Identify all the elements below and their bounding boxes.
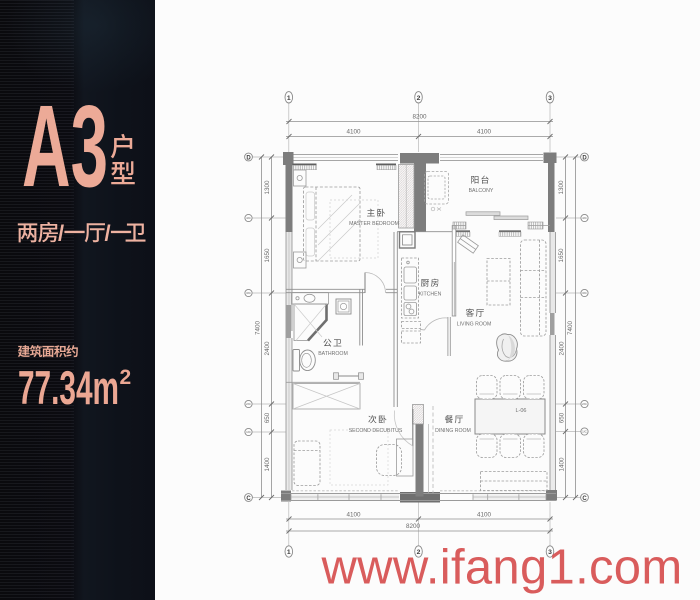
svg-text:BATHROOM: BATHROOM [318,351,348,357]
svg-text:/: / [58,221,64,246]
svg-text:8200: 8200 [406,523,421,530]
svg-text:2400: 2400 [559,341,566,356]
svg-text:4100: 4100 [477,512,492,519]
svg-text:DINING ROOM: DINING ROOM [435,428,471,434]
svg-text:1: 1 [287,95,291,102]
svg-text:KITCHEN: KITCHEN [419,292,442,298]
svg-text:2: 2 [417,95,421,102]
svg-text:D: D [582,155,587,161]
svg-text:1650: 1650 [264,248,271,263]
svg-text:BALCONY: BALCONY [469,188,494,194]
svg-text:2400: 2400 [264,341,271,356]
svg-text:C: C [246,496,251,502]
svg-text:1: 1 [287,549,291,556]
svg-text:7400: 7400 [255,321,262,336]
svg-text:3/C: 3/C [582,291,588,295]
svg-text:4/C: 4/C [246,216,252,220]
svg-text:3/C: 3/C [246,291,252,295]
svg-text:2: 2 [120,366,132,389]
svg-text:650: 650 [264,412,271,423]
svg-text:1400: 1400 [559,457,566,472]
svg-text:A3: A3 [22,81,108,211]
svg-text:1650: 1650 [558,248,565,263]
svg-text:SECOND DECUBITUS: SECOND DECUBITUS [349,428,403,434]
svg-text:7400: 7400 [567,321,574,336]
svg-text:1400: 1400 [264,457,271,472]
svg-text:2/C: 2/C [582,402,588,406]
svg-text:MASTER BEDROOM: MASTER BEDROOM [349,221,399,227]
svg-text:D: D [246,155,251,161]
svg-text:L-06: L-06 [515,408,526,414]
svg-text:4/C: 4/C [582,216,588,220]
svg-text:77.34m: 77.34m [18,361,119,414]
svg-text:1300: 1300 [558,180,565,195]
svg-text:/: / [105,221,111,246]
svg-text:2/C: 2/C [246,402,252,406]
svg-text:1/C: 1/C [582,430,588,434]
svg-text:8200: 8200 [412,114,427,121]
svg-text:LIVING ROOM: LIVING ROOM [457,322,492,328]
svg-text:1300: 1300 [264,180,271,195]
svg-text:3: 3 [548,95,552,102]
svg-text:650: 650 [559,412,566,423]
svg-text:1/C: 1/C [246,430,252,434]
svg-text:4100: 4100 [477,129,492,136]
svg-text:C: C [582,496,587,502]
svg-text:4100: 4100 [346,129,361,136]
svg-text:4100: 4100 [346,512,361,519]
svg-text:www.ifang1.com: www.ifang1.com [321,541,683,595]
